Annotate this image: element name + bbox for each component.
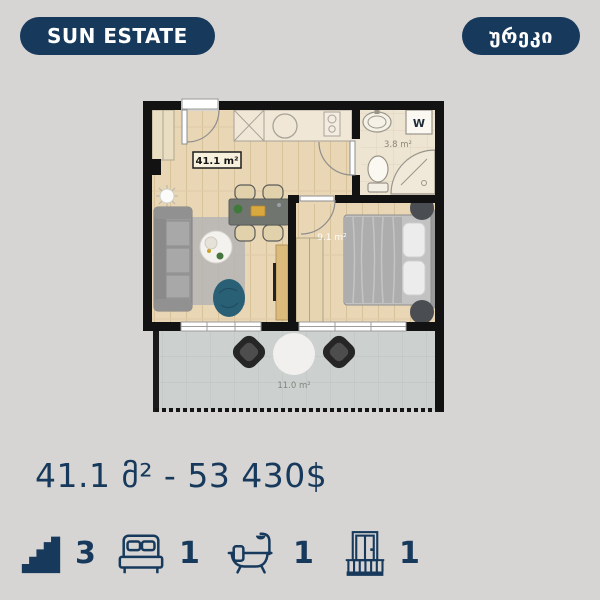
- bathroom-area-label: 3.8 m²: [384, 140, 412, 150]
- washer-label: W: [413, 117, 425, 130]
- stat-value-floor: 3: [75, 530, 96, 578]
- floorplan: W: [139, 97, 445, 415]
- bed: [344, 209, 435, 309]
- svg-text:41.1 m²: 41.1 m²: [196, 156, 239, 167]
- stat-bedrooms: 1: [116, 530, 200, 578]
- living-room-area-label: 41.1 m²: [193, 152, 241, 168]
- pillow: [403, 261, 425, 295]
- coffee-table: [200, 231, 232, 263]
- tv: [273, 263, 276, 301]
- pendant-light: [156, 185, 178, 207]
- stat-value-bathrooms: 1: [293, 530, 314, 578]
- bath-icon: [226, 530, 280, 578]
- balcony-icon: [344, 530, 386, 578]
- nightstand: [410, 300, 434, 324]
- kitchen-counter: [234, 110, 352, 141]
- terrace-table: [273, 333, 315, 375]
- sofa: [154, 207, 192, 311]
- stat-value-balconies: 1: [399, 530, 420, 578]
- location-badge[interactable]: ურეკი: [462, 17, 580, 55]
- stat-floor: 3: [20, 530, 96, 578]
- terrace-area-label: 11.0 m²: [277, 381, 310, 391]
- bedroom-area-label: 9.1 m²: [317, 233, 347, 243]
- price-line: 41.1 მ² - 53 430$: [35, 456, 327, 495]
- living-room-window: [181, 322, 261, 331]
- bedroom-window: [299, 322, 406, 331]
- beanbag-chair: [213, 279, 245, 317]
- stat-balconies: 1: [344, 530, 420, 578]
- pillow: [403, 223, 425, 257]
- stat-value-bedrooms: 1: [179, 530, 200, 578]
- stove: [324, 112, 340, 136]
- washing-machine: W: [406, 110, 432, 134]
- brand-badge[interactable]: SUN ESTATE: [20, 17, 215, 55]
- bed-icon: [116, 531, 166, 577]
- stat-bathrooms: 1: [226, 530, 314, 578]
- toilet: [368, 156, 388, 192]
- stairs-icon: [20, 534, 62, 574]
